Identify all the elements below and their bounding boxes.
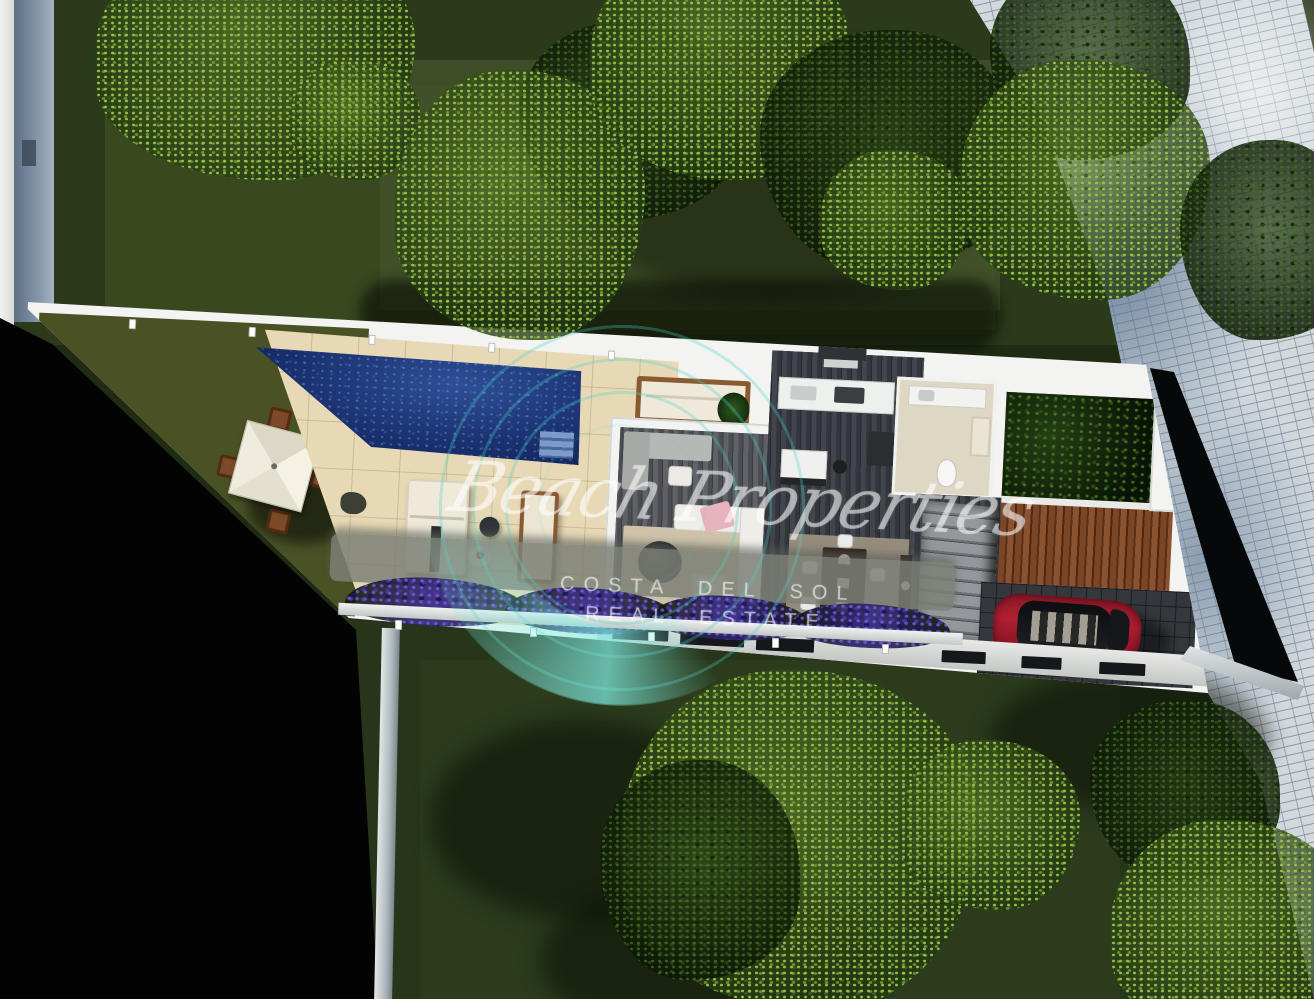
courtyard-wood-deck [997, 503, 1173, 591]
courtyard-plants [1002, 392, 1155, 505]
kitchen-hob [834, 387, 865, 404]
fence-post-4 [488, 343, 495, 353]
ledge-post-5 [882, 644, 889, 654]
dining-chair-head-n [837, 534, 854, 549]
left-wall-window-mark [22, 140, 36, 166]
fridge-column [867, 431, 895, 466]
bottom-window-4 [941, 650, 986, 664]
bottom-window-6 [1099, 662, 1146, 676]
pool-steps [539, 431, 574, 459]
shower-tray [969, 416, 991, 457]
aerial-property-render: Beach Properties COSTA DEL SOL REAL ESTA… [0, 0, 1314, 999]
bottom-window-5 [1021, 656, 1062, 670]
ledge-post-2 [530, 627, 537, 637]
ledge-post-1 [395, 620, 402, 630]
tree-shadow-top [560, 40, 990, 300]
vanity-sink [918, 390, 935, 402]
fence-post-1 [129, 319, 136, 329]
tree-shadow-bottom-3 [990, 670, 1270, 810]
left-wall-white-strip [0, 0, 14, 330]
entry-step [824, 359, 858, 369]
fence-post-3 [368, 335, 375, 345]
red-car-interior [1030, 611, 1098, 646]
armchair-white [668, 465, 693, 486]
fence-post-2 [248, 327, 255, 337]
ledge-post-3 [648, 632, 655, 642]
sectional-sofa-gray-leg [621, 431, 650, 490]
kitchen-sink [790, 385, 817, 400]
ledge-post-4 [772, 638, 779, 648]
fence-post-5 [608, 350, 615, 360]
